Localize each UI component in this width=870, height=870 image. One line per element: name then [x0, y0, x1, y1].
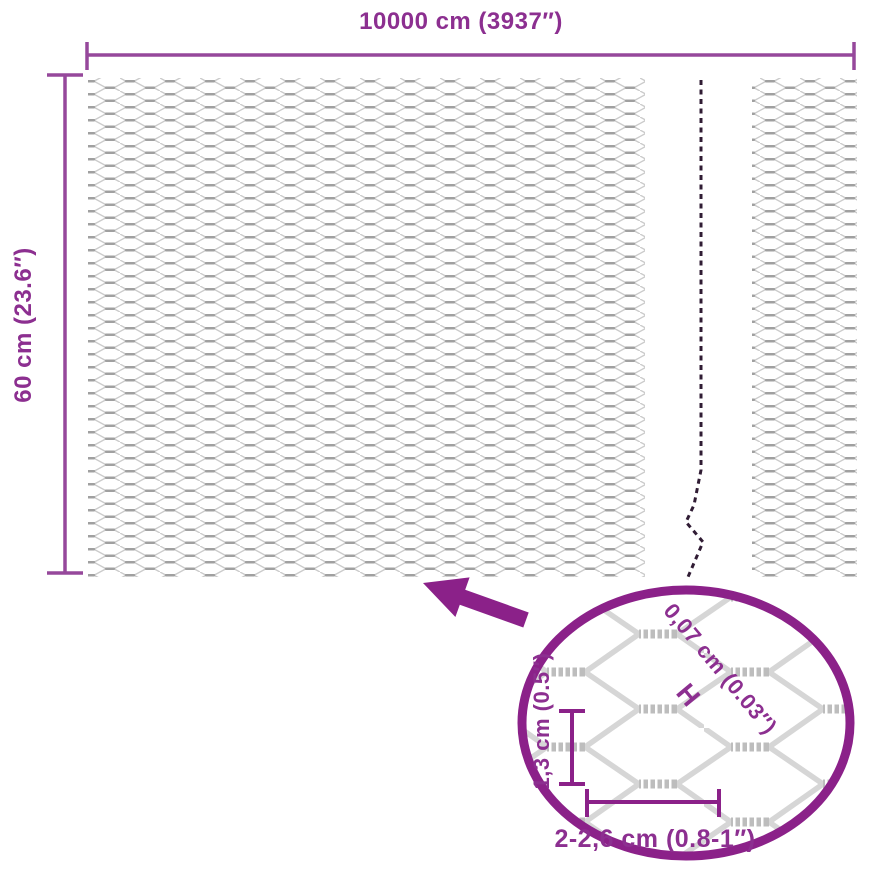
width-dimension-label: 10000 cm (3937″)	[261, 8, 661, 36]
zoom-arrow-icon	[423, 577, 529, 627]
cell-width-label: 2-2,6 cm (0.8-1″)	[495, 825, 815, 854]
break-line	[686, 80, 703, 577]
product-dimension-diagram: 10000 cm (3937″) 60 cm (23.6″) 0,07 cm (…	[0, 0, 870, 870]
diagram-canvas	[0, 0, 870, 870]
width-dimension-line	[87, 42, 854, 70]
cell-height-label: 1,3 cm (0.5″)	[529, 611, 555, 831]
mesh-panel-main	[88, 78, 645, 577]
height-dimension-label: 60 cm (23.6″)	[10, 175, 38, 475]
mesh-panel-right	[752, 78, 857, 577]
height-dimension-line	[47, 75, 83, 573]
